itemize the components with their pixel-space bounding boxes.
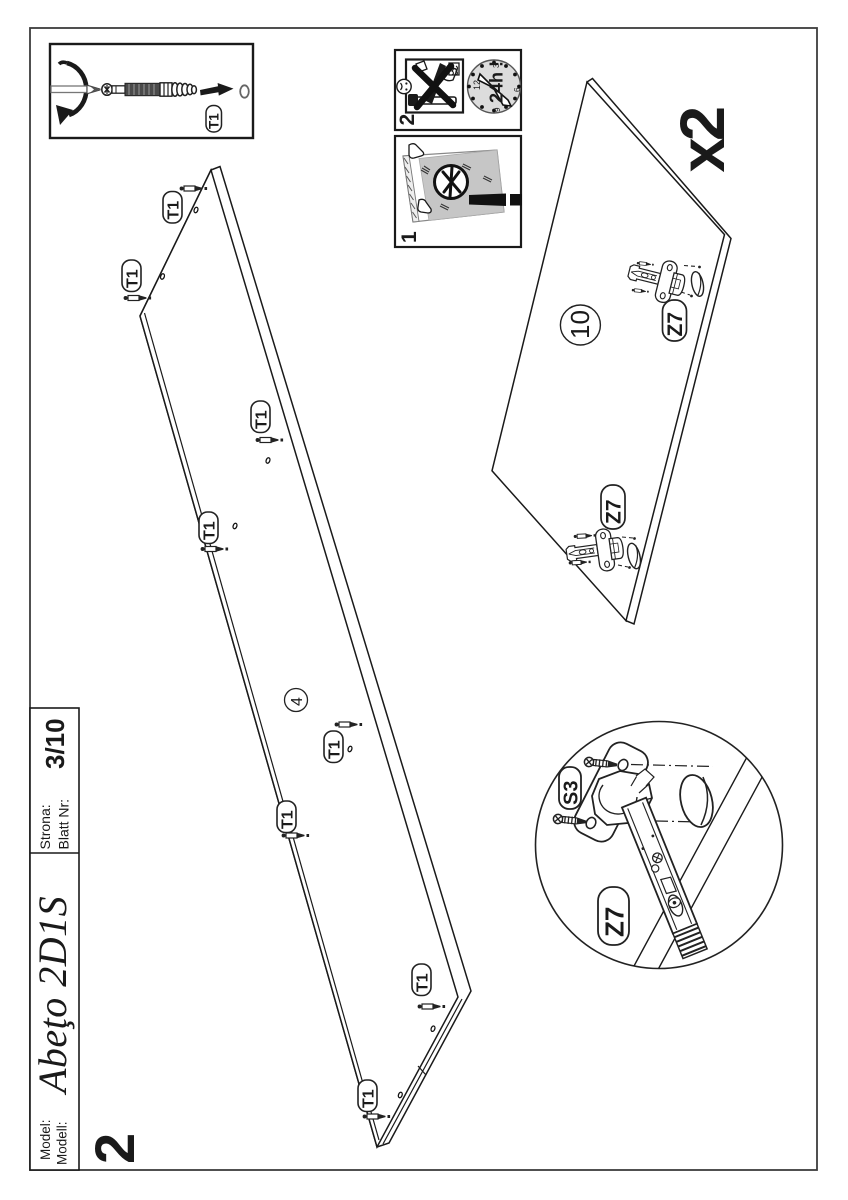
svg-text:Z7: Z7 bbox=[600, 907, 630, 937]
svg-text:Z7: Z7 bbox=[664, 312, 687, 337]
svg-text:T1: T1 bbox=[327, 740, 344, 759]
svg-text:2: 2 bbox=[396, 114, 419, 126]
svg-text:T1: T1 bbox=[361, 1089, 378, 1108]
svg-text:T1: T1 bbox=[206, 113, 221, 129]
svg-text:T1: T1 bbox=[280, 810, 297, 829]
svg-text:T1: T1 bbox=[166, 201, 183, 220]
svg-text:2: 2 bbox=[83, 1133, 146, 1164]
svg-text:10: 10 bbox=[565, 310, 595, 339]
svg-text:Blatt Nr:: Blatt Nr: bbox=[56, 799, 72, 850]
svg-text:9: 9 bbox=[493, 107, 502, 112]
svg-text:6: 6 bbox=[513, 87, 522, 92]
svg-text:Z7: Z7 bbox=[603, 499, 626, 524]
svg-text:24h !: 24h ! bbox=[487, 61, 507, 103]
svg-text:T1: T1 bbox=[125, 269, 142, 288]
svg-text:T1: T1 bbox=[415, 973, 432, 992]
svg-text:Strona:: Strona: bbox=[37, 804, 53, 849]
svg-text:Model:: Model: bbox=[38, 1119, 53, 1160]
svg-text:3/10: 3/10 bbox=[40, 718, 70, 769]
svg-text:Abeţo 2D1S: Abeţo 2D1S bbox=[30, 896, 75, 1096]
svg-text:1: 1 bbox=[398, 231, 421, 243]
svg-text:x2: x2 bbox=[668, 108, 738, 173]
svg-text:T1: T1 bbox=[202, 521, 219, 540]
svg-text:S3: S3 bbox=[561, 781, 583, 805]
svg-text:T1: T1 bbox=[254, 410, 271, 429]
svg-text:Modell:: Modell: bbox=[55, 1121, 70, 1165]
svg-text:4: 4 bbox=[289, 697, 306, 706]
